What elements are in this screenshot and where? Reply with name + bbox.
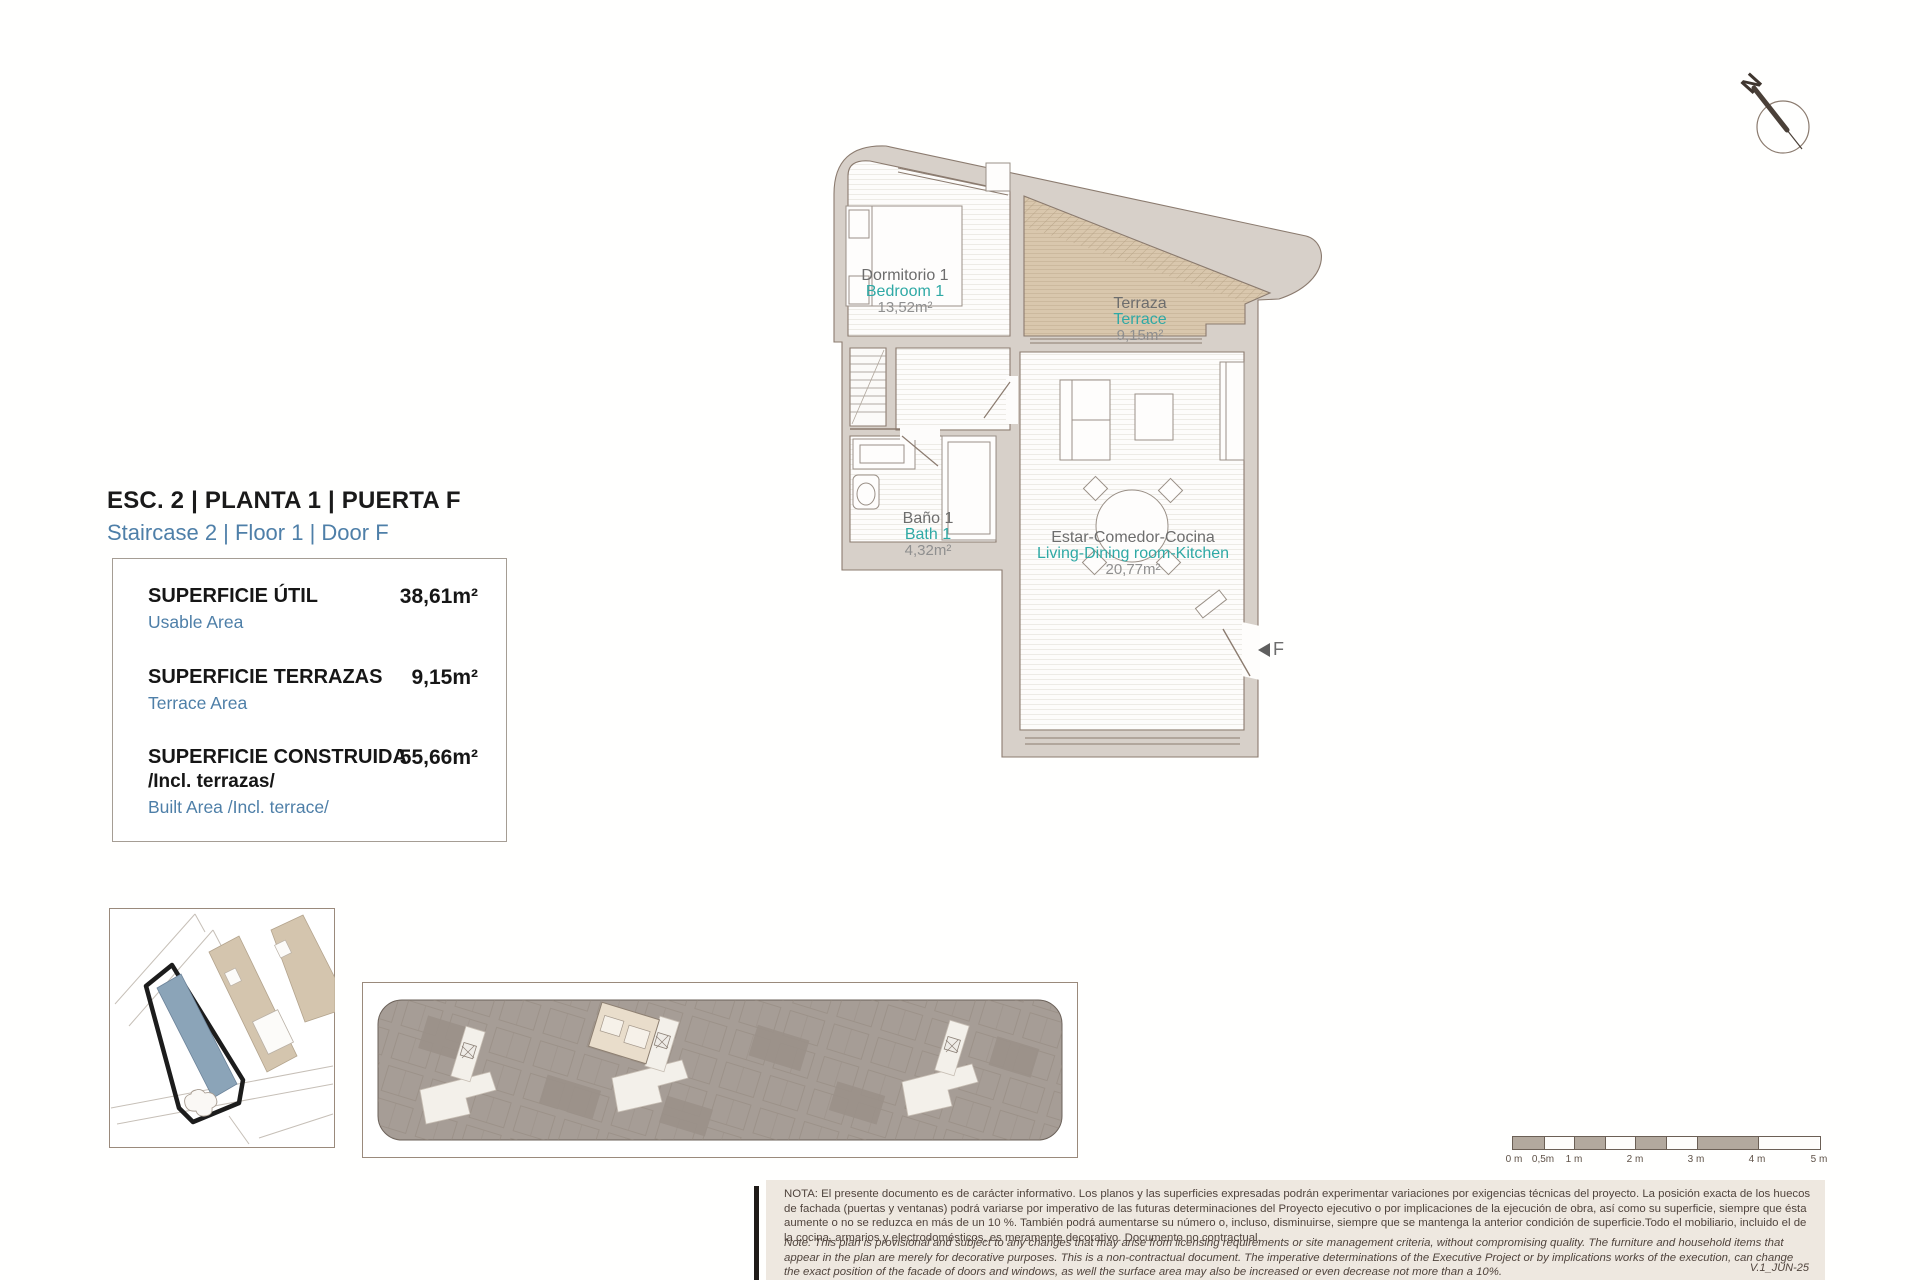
living-area: 20,77m² (1037, 562, 1229, 578)
disclaimer-note-box: NOTA: El presente documento es de caráct… (752, 1180, 1825, 1280)
terrace-name-es: Terraza (1113, 296, 1166, 312)
compass-north-icon: N (1725, 62, 1845, 182)
kitchen-counter-icon (1220, 362, 1244, 460)
living-name-en: Living-Dining room-Kitchen (1037, 546, 1229, 562)
scale-tick-label: 1 m (1566, 1154, 1583, 1165)
living-label: Estar-Comedor-Cocina Living-Dining room-… (1037, 530, 1229, 578)
terrace-name-en: Terrace (1113, 312, 1166, 328)
bath-area: 4,32m² (903, 543, 954, 559)
surface-area-panel: SUPERFICIE ÚTIL 38,61m² Usable Area SUPE… (112, 558, 507, 842)
terrace-area-sublabel: Terrace Area (148, 693, 482, 714)
terrace-area-row: SUPERFICIE TERRAZAS 9,15m² Terrace Area (148, 666, 482, 714)
page-title: ESC. 2 | PLANTA 1 | PUERTA F (107, 487, 461, 515)
bath-name-en: Bath 1 (903, 527, 954, 543)
bedroom-area: 13,52m² (861, 300, 948, 316)
usable-area-sublabel: Usable Area (148, 612, 482, 633)
scale-bar-segments (1512, 1136, 1821, 1150)
built-area-sublabel: Built Area /Incl. terrace/ (148, 797, 482, 818)
terrace-area-value-label: 9,15m² (1113, 328, 1166, 344)
bath-label: Baño 1 Bath 1 4,32m² (903, 511, 954, 559)
scale-tick-label: 2 m (1627, 1154, 1644, 1165)
terrace-area-value: 9,15m² (411, 666, 478, 690)
apartment-floor-plan (820, 130, 1350, 770)
entrance-door-marker: F (1258, 639, 1284, 660)
door-letter: F (1273, 639, 1284, 660)
key-plan-strip (362, 982, 1078, 1158)
site-location-thumbnail (109, 908, 335, 1148)
built-area-row: SUPERFICIE CONSTRUIDA 55,66m² /Incl. ter… (148, 746, 482, 818)
wardrobe-icon (986, 163, 1010, 191)
note-text-en: Note: This plan is provisional and subje… (784, 1236, 1812, 1280)
version-label: V.1_JUN-25 (1750, 1262, 1809, 1274)
bath-name-es: Baño 1 (903, 511, 954, 527)
note-left-bar (754, 1186, 759, 1280)
built-area-value: 55,66m² (400, 746, 478, 770)
scale-tick-label: 0,5m (1532, 1154, 1554, 1165)
door-direction-icon (1258, 643, 1270, 657)
scale-tick-label: 3 m (1688, 1154, 1705, 1165)
coffee-table-icon (1135, 394, 1173, 440)
usable-area-row: SUPERFICIE ÚTIL 38,61m² Usable Area (148, 585, 482, 633)
living-name-es: Estar-Comedor-Cocina (1037, 530, 1229, 546)
terrace-label: Terraza Terrace 9,15m² (1113, 296, 1166, 344)
bedroom-name-es: Dormitorio 1 (861, 268, 948, 284)
scale-tick-label: 0 m (1506, 1154, 1523, 1165)
scale-bar: 0 m 0,5m 1 m 2 m 3 m 4 m 5 m (1506, 1132, 1826, 1168)
page-subtitle: Staircase 2 | Floor 1 | Door F (107, 520, 389, 546)
built-area-label2: /Incl. terrazas/ (148, 771, 482, 793)
usable-area-value: 38,61m² (400, 585, 478, 609)
bedroom-name-en: Bedroom 1 (861, 284, 948, 300)
floor-plan-sheet: N ESC. 2 | PLANTA 1 | PUERTA F Staircase… (0, 0, 1920, 1280)
bedroom-label: Dormitorio 1 Bedroom 1 13,52m² (861, 268, 948, 316)
scale-tick-label: 5 m (1811, 1154, 1828, 1165)
pillow-icon (849, 210, 869, 238)
compass-north-label: N (1736, 68, 1768, 99)
scale-tick-label: 4 m (1749, 1154, 1766, 1165)
